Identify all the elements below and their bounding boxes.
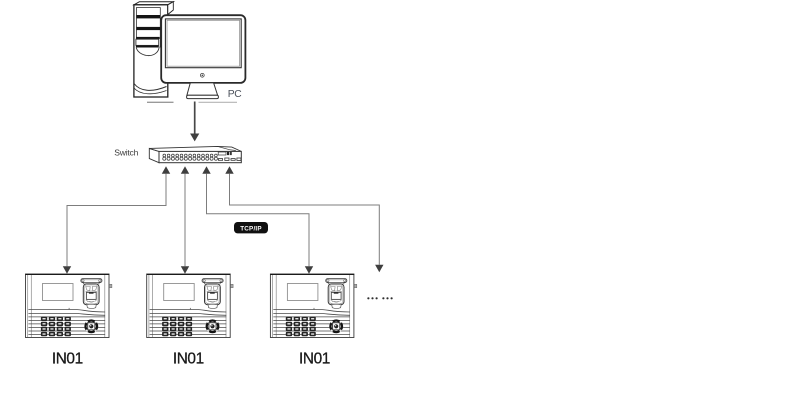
svg-text:IN01: IN01 (299, 351, 330, 368)
svg-text:IN01: IN01 (173, 351, 204, 368)
svg-text:IN01: IN01 (52, 351, 83, 368)
svg-text:Switch: Switch (114, 148, 138, 158)
svg-text:TCP/IP: TCP/IP (240, 225, 262, 232)
svg-text:PC: PC (228, 89, 242, 100)
